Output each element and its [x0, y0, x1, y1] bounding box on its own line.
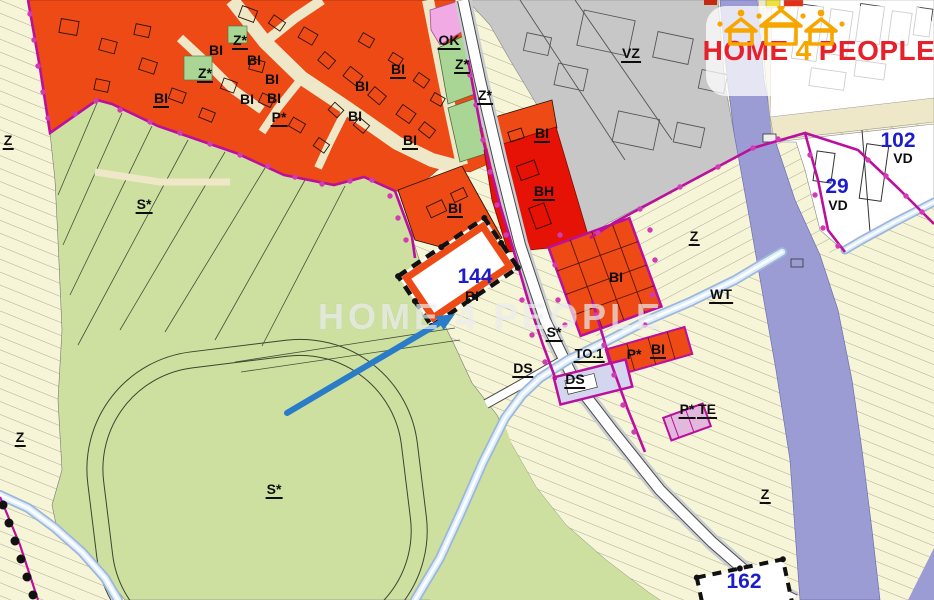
zone-label-s: S*: [136, 197, 153, 214]
zone-label-z: Z*: [454, 57, 470, 74]
parcel-number-102: 102: [880, 130, 915, 152]
zone-label-bi: BI: [390, 62, 406, 79]
zone-label-z: Z*: [477, 88, 493, 105]
zone-label-bi: BI: [355, 79, 369, 94]
zone-label-p: P*: [627, 347, 642, 362]
zone-label-bi: BI: [265, 72, 279, 87]
map-canvas[interactable]: HOME 4 PEOPLE OKZ*Z*VZBIZ*BIZ*BIBIBIBIP*…: [0, 0, 934, 600]
zone-label-bi: BI: [240, 92, 254, 107]
zone-label-vd: VD: [893, 151, 912, 166]
zone-label-s: S*: [546, 325, 563, 342]
logo-crown-icon: [706, 6, 856, 50]
zone-label-bi: BI: [465, 289, 479, 304]
home4people-logo: HOME 4 PEOPLE: [706, 6, 932, 96]
zone-label-bi: BI: [153, 91, 169, 108]
zone-label-bi: BI: [447, 201, 463, 218]
zone-label-bi: BI: [247, 53, 261, 68]
zone-label-bi: BI: [650, 342, 666, 359]
parcel-number-29: 29: [825, 176, 848, 198]
zone-label-p: P*: [679, 402, 696, 419]
zone-label-bi: BI: [534, 126, 550, 143]
zone-label-bi: BI: [402, 133, 418, 150]
zone-label-p: P*: [271, 110, 288, 127]
parcel-red-sliver2: [704, 0, 717, 5]
parcel-number-162: 162: [726, 571, 761, 593]
zone-label-bi: BI: [348, 109, 362, 124]
zone-label-vd: VD: [828, 198, 847, 213]
parcel-number-144: 144: [457, 266, 492, 288]
zone-label-vz: VZ: [621, 46, 641, 63]
zone-label-s: S*: [266, 482, 283, 499]
zone-label-bi: BI: [267, 91, 281, 106]
zone-label-ds: DS: [512, 361, 533, 378]
zone-label-bi: BI: [609, 270, 623, 285]
zone-label-ds: DS: [564, 372, 585, 389]
zone-label-to1: TO.1: [574, 347, 605, 363]
zone-label-z: Z: [689, 229, 700, 246]
zone-label-ok: OK: [438, 33, 461, 50]
zone-label-te: TE: [697, 402, 717, 419]
zone-label-wt: WT: [709, 287, 733, 304]
zone-label-bh: BH: [533, 184, 555, 201]
zone-label-z: Z*: [232, 33, 248, 50]
zone-label-z: Z: [3, 133, 14, 150]
zone-label-bi: BI: [209, 43, 223, 58]
zone-label-z: Z: [760, 487, 771, 504]
zone-label-z: Z: [15, 430, 26, 447]
zone-label-z: Z*: [197, 66, 213, 83]
